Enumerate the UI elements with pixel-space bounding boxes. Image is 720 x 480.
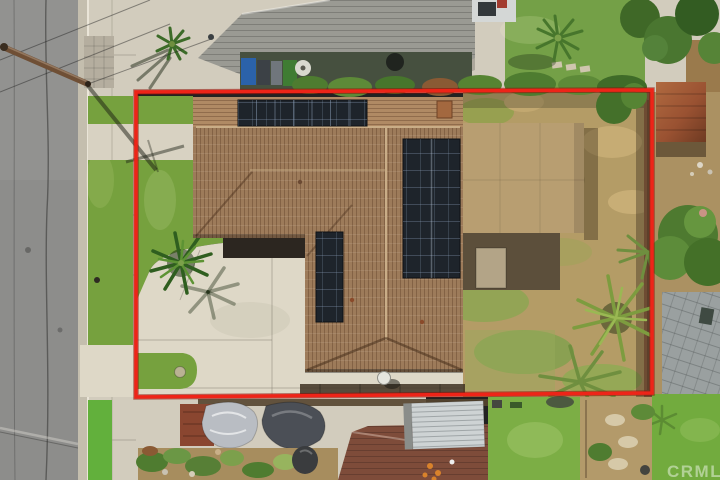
- bin-blue: [241, 58, 256, 85]
- lawn-dark-spot: [94, 277, 100, 283]
- round-planter: [386, 53, 404, 71]
- patio-chair: [699, 307, 715, 325]
- roof-vent: [420, 320, 424, 324]
- garden-path: [580, 397, 655, 480]
- rusty-shed-roof: [656, 82, 706, 142]
- chimney: [437, 101, 452, 118]
- storage-shed-small: [476, 248, 506, 288]
- grill: [478, 2, 496, 16]
- roof-vent: [350, 298, 354, 302]
- aerial-property-photo: CRMLS: [0, 0, 720, 480]
- solar-array-east: [403, 139, 460, 278]
- covered-vehicle-silver: [202, 402, 258, 448]
- pole-top: [0, 43, 8, 51]
- planter-pot: [640, 465, 650, 475]
- shed-shadow: [656, 142, 706, 157]
- carport-roof: [403, 401, 485, 450]
- street-patch: [0, 0, 78, 180]
- bottom-strip: [136, 396, 655, 480]
- watermark: CRMLS: [667, 462, 720, 480]
- solar-array-west: [316, 232, 343, 322]
- utility-cover: [175, 367, 186, 378]
- patio-shadow: [584, 128, 598, 240]
- roof-antenna: [208, 34, 214, 40]
- right-strip: [648, 82, 720, 480]
- eave-shadow: [193, 234, 305, 238]
- patio-cover: [462, 123, 584, 233]
- entry-porch-shadow: [223, 238, 305, 258]
- satellite-dish: [378, 372, 391, 385]
- bin-gray: [271, 61, 282, 85]
- red-object: [497, 0, 507, 8]
- driveway-apron: [80, 345, 136, 397]
- person-seated: [699, 209, 707, 217]
- bin-charcoal: [257, 60, 270, 85]
- roof-vent: [298, 180, 302, 184]
- parkway-turf-lower: [88, 400, 112, 480]
- lawn-patch-lower: [137, 353, 197, 389]
- solar-array-top: [238, 100, 367, 126]
